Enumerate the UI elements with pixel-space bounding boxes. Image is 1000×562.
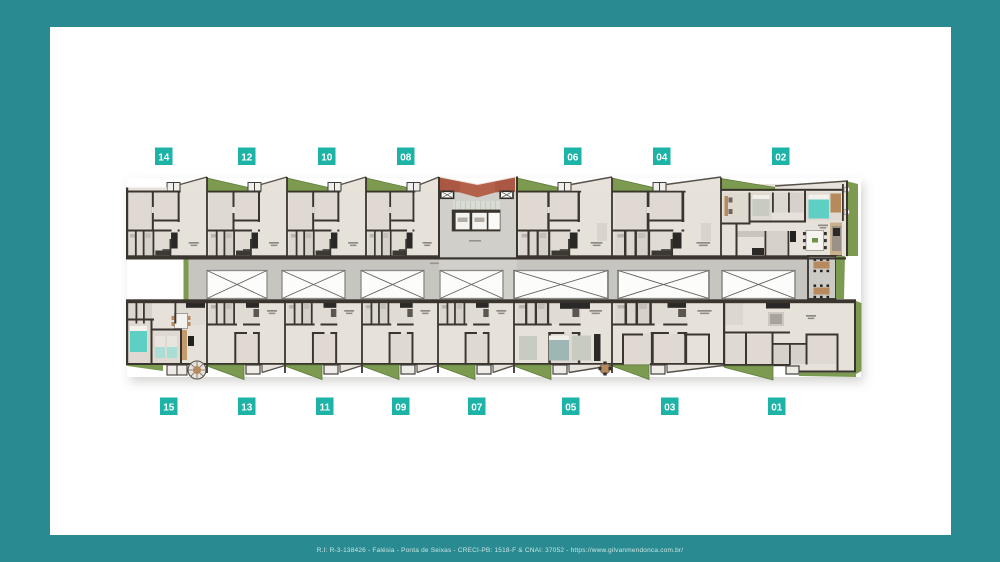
svg-text:11: 11: [319, 403, 330, 414]
svg-text:02: 02: [775, 153, 787, 164]
svg-text:01: 01: [771, 403, 783, 414]
svg-text:14: 14: [158, 153, 170, 164]
svg-text:04: 04: [656, 153, 668, 164]
svg-text:10: 10: [321, 153, 333, 164]
svg-text:08: 08: [400, 153, 412, 164]
svg-text:06: 06: [567, 153, 579, 164]
svg-text:07: 07: [471, 403, 483, 414]
svg-text:12: 12: [241, 153, 253, 164]
svg-text:05: 05: [565, 403, 577, 414]
svg-text:09: 09: [395, 403, 407, 414]
svg-text:03: 03: [664, 403, 676, 414]
svg-text:13: 13: [241, 403, 253, 414]
svg-text:15: 15: [163, 403, 175, 414]
